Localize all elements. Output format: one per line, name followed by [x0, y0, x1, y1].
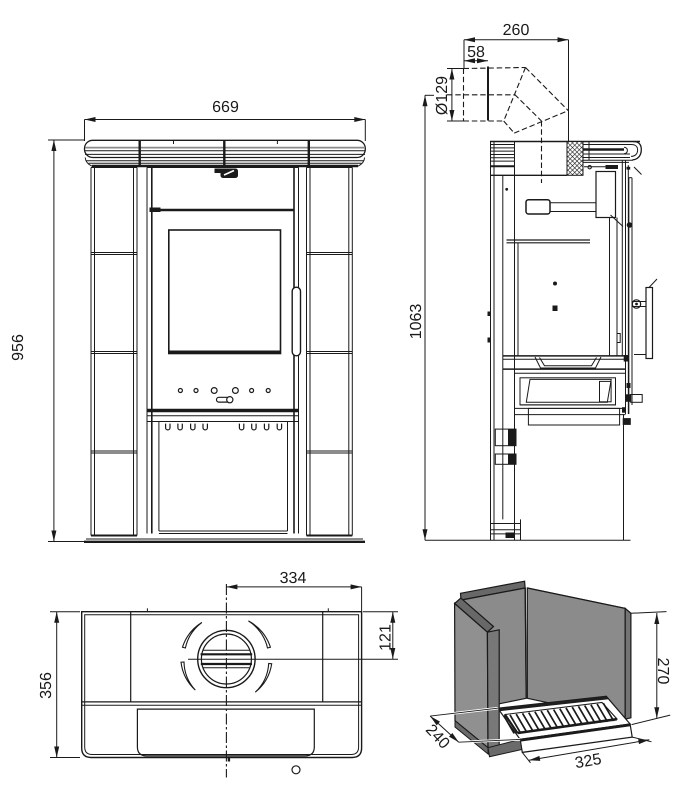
svg-text:669: 669 — [212, 99, 239, 116]
svg-text:334: 334 — [280, 570, 307, 587]
svg-text:270: 270 — [654, 658, 671, 685]
svg-text:1063: 1063 — [408, 304, 425, 340]
svg-text:260: 260 — [503, 22, 530, 39]
svg-text:356: 356 — [38, 672, 55, 699]
svg-text:58: 58 — [467, 44, 485, 61]
svg-text:Ø129: Ø129 — [434, 76, 451, 115]
svg-text:121: 121 — [378, 624, 395, 651]
svg-text:956: 956 — [10, 334, 27, 361]
